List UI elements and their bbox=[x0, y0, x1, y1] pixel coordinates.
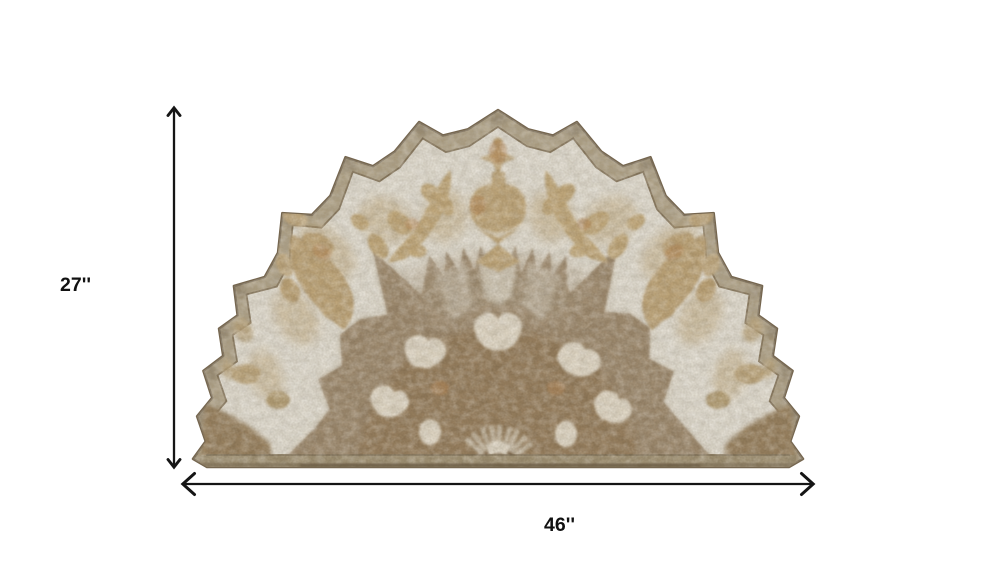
svg-text:46'': 46'' bbox=[544, 514, 575, 536]
svg-text:27'': 27'' bbox=[60, 274, 91, 296]
